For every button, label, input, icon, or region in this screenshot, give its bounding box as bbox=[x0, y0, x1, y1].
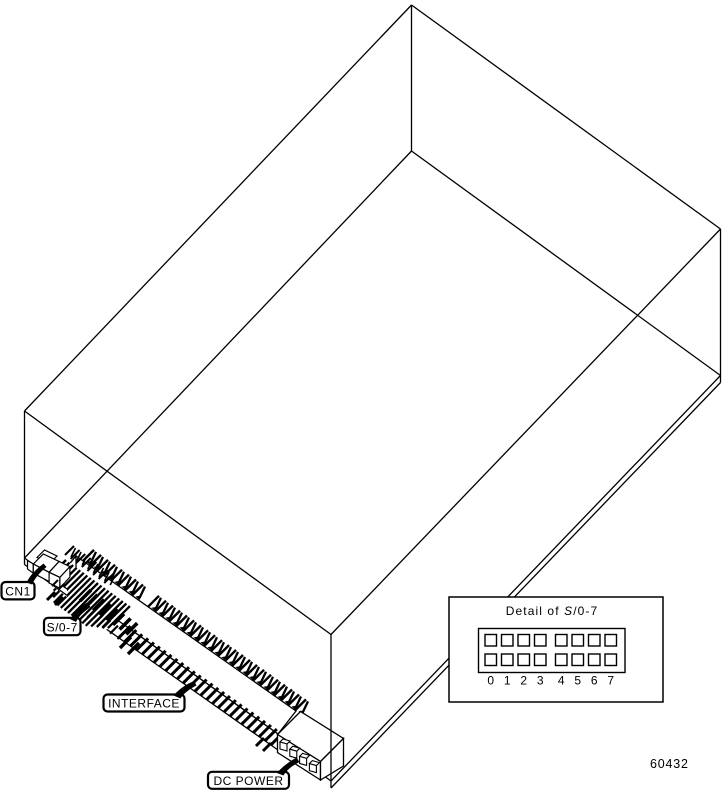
svg-text:Detail of S/0-7: Detail of S/0-7 bbox=[506, 604, 599, 618]
svg-text:3: 3 bbox=[537, 674, 544, 688]
svg-text:4: 4 bbox=[558, 674, 565, 688]
svg-text:0: 0 bbox=[487, 674, 494, 688]
svg-text:INTERFACE: INTERFACE bbox=[108, 697, 180, 711]
svg-text:2: 2 bbox=[520, 674, 527, 688]
svg-text:60432: 60432 bbox=[650, 757, 689, 771]
svg-text:S/0-7: S/0-7 bbox=[47, 620, 78, 634]
svg-text:DC POWER: DC POWER bbox=[214, 774, 284, 788]
svg-text:1: 1 bbox=[504, 674, 511, 688]
svg-text:CN1: CN1 bbox=[5, 584, 31, 598]
svg-text:7: 7 bbox=[607, 674, 614, 688]
svg-text:6: 6 bbox=[591, 674, 598, 688]
svg-text:5: 5 bbox=[574, 674, 581, 688]
